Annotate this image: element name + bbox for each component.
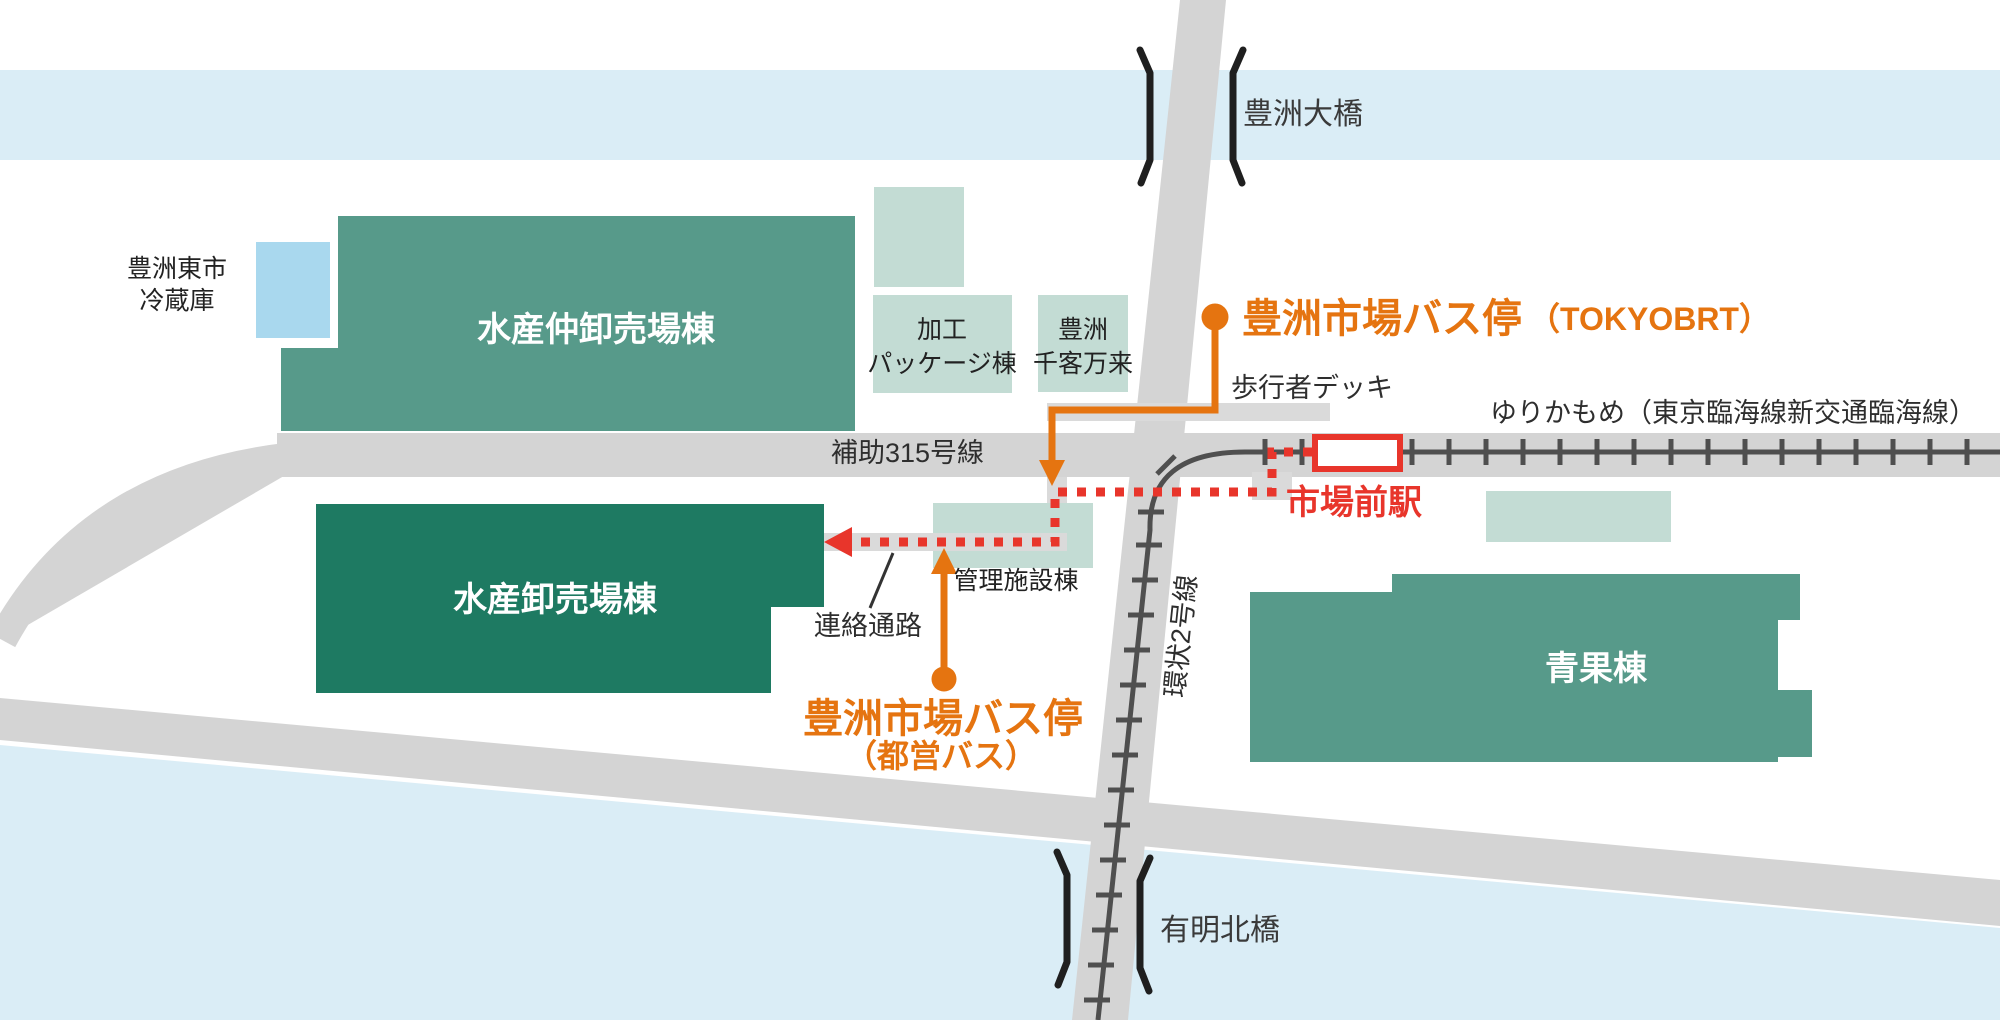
toei-bus-stop-dot <box>932 667 957 692</box>
label-kanri: 管理施設棟 <box>953 567 1078 595</box>
label-reizoko-line2: 冷蔵庫 <box>139 287 214 315</box>
label-hojo315: 補助315号線 <box>831 438 984 468</box>
building-reizoko <box>256 242 330 338</box>
hojo315-road <box>277 433 2000 477</box>
label-oroshiuri: 水産卸売場棟 <box>453 581 658 619</box>
label-senkyaku-line1: 豊洲 <box>1058 316 1108 344</box>
label-shijomae-station: 市場前駅 <box>1286 483 1422 522</box>
building-seika <box>1250 574 1812 762</box>
building-unlabeled-east <box>1486 491 1671 542</box>
label-kako-line1: 加工 <box>917 316 967 344</box>
water-canal-top <box>0 70 2000 160</box>
building-kako-package <box>873 295 1012 393</box>
label-ariake-kitabashi: 有明北橋 <box>1160 914 1280 947</box>
label-toei-stop-sub: （都営バス） <box>845 738 1037 774</box>
renraku-pointer-line <box>870 553 893 608</box>
curved-ramp-road <box>2 455 320 640</box>
label-seika: 青果棟 <box>1545 650 1648 688</box>
label-nakaoroshi: 水産仲卸売場棟 <box>477 311 716 349</box>
label-brt-stop-sub: （TOKYOBRT） <box>1528 301 1771 337</box>
walking-route-arrowhead <box>824 527 852 557</box>
toyosu-market-access-map: 豊洲大橋 豊洲東市 冷蔵庫 水産仲卸売場棟 加工 パッケージ棟 豊洲 千客万来 … <box>0 0 2000 1020</box>
label-reizoko-line1: 豊洲東市 <box>127 255 227 283</box>
label-toyosu-ohashi: 豊洲大橋 <box>1243 98 1363 131</box>
label-toei-stop-main: 豊洲市場バス停 <box>803 697 1083 741</box>
label-pedestrian-deck: 歩行者デッキ <box>1231 373 1393 403</box>
label-kako-line2: パッケージ棟 <box>867 350 1017 378</box>
brt-bus-stop-dot <box>1202 304 1229 331</box>
map-canvas: 豊洲大橋 豊洲東市 冷蔵庫 水産仲卸売場棟 加工 パッケージ棟 豊洲 千客万来 … <box>0 0 2000 1020</box>
building-unlabeled-north <box>874 187 964 287</box>
label-brt-stop-main: 豊洲市場バス停 <box>1242 297 1522 341</box>
label-renraku: 連絡通路 <box>814 611 922 641</box>
label-senkyaku-line2: 千客万来 <box>1033 350 1133 378</box>
label-yurikamome: ゆりかもめ（東京臨海線新交通臨海線） <box>1490 398 1976 428</box>
shijomae-station-marker <box>1315 437 1400 469</box>
